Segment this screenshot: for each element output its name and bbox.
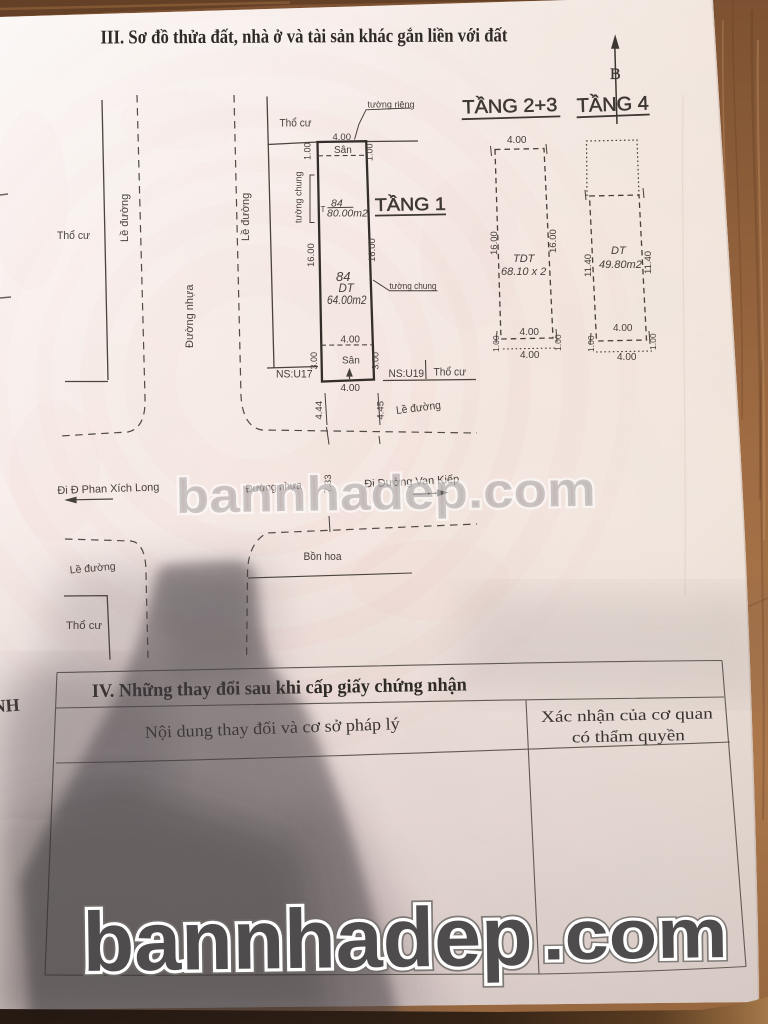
svg-text:TDT: TDT [513, 253, 536, 265]
svg-text:4.00: 4.00 [520, 350, 540, 361]
svg-text:16.00: 16.00 [306, 243, 317, 267]
svg-text:Lề đường: Lề đường [240, 193, 252, 241]
svg-text:4.45: 4.45 [376, 401, 387, 420]
svg-text:bannhadep: bannhadep [82, 889, 533, 989]
svg-text:T: T [321, 205, 326, 214]
svg-text:68.10 x 2: 68.10 x 2 [501, 266, 546, 278]
svg-text:4.00: 4.00 [341, 383, 361, 394]
svg-text:4.44: 4.44 [314, 401, 325, 420]
svg-text:16.00: 16.00 [489, 231, 500, 255]
svg-text:Lề đường: Lề đường [119, 194, 131, 242]
svg-text:1.00: 1.00 [648, 333, 658, 350]
svg-text:.com: .com [542, 894, 728, 975]
svg-text:49.80m2: 49.80m2 [599, 259, 642, 271]
svg-text:84: 84 [336, 269, 350, 284]
svg-text:III. Sơ đồ thửa đất, nhà ở và: III. Sơ đồ thửa đất, nhà ở và tài sản kh… [100, 25, 508, 48]
svg-text:DT: DT [611, 245, 627, 257]
svg-text:3.00: 3.00 [309, 352, 319, 370]
svg-text:NS:U19: NS:U19 [389, 368, 425, 380]
svg-text:Thổ cư: Thổ cư [434, 367, 467, 379]
svg-text:1.00: 1.00 [365, 143, 375, 161]
svg-text:bannhadep.com: bannhadep.com [175, 463, 596, 524]
svg-text:TẦNG 4: TẦNG 4 [576, 91, 649, 117]
svg-text:TẦNG 2+3: TẦNG 2+3 [462, 94, 558, 118]
svg-text:Bồn hoa: Bồn hoa [304, 551, 343, 563]
svg-text:4.00: 4.00 [613, 323, 633, 334]
svg-text:4.00: 4.00 [520, 327, 540, 338]
svg-text:Sân: Sân [334, 145, 352, 156]
svg-text:Sân: Sân [342, 356, 360, 367]
svg-text:DT: DT [339, 283, 355, 295]
svg-text:16.00: 16.00 [548, 229, 559, 253]
svg-text:64.00m2: 64.00m2 [327, 295, 367, 307]
svg-text:4.00: 4.00 [341, 335, 361, 346]
svg-text:B: B [610, 66, 621, 83]
svg-text:Thổ cư: Thổ cư [57, 230, 91, 242]
svg-text:Đường nhựa: Đường nhựa [184, 284, 196, 348]
svg-text:11.40: 11.40 [643, 251, 654, 274]
svg-text:4.00: 4.00 [333, 132, 352, 143]
svg-text:Thổ cư: Thổ cư [280, 118, 313, 130]
svg-text:tường chung: tường chung [294, 172, 304, 223]
svg-text:Xác nhận của cơ quan: Xác nhận của cơ quan [541, 705, 713, 726]
svg-text:16.00: 16.00 [367, 238, 378, 262]
svg-text:1.00: 1.00 [586, 335, 596, 352]
svg-text:3.00: 3.00 [371, 352, 381, 370]
svg-text:11.40: 11.40 [583, 254, 594, 277]
svg-text:có thẩm quyền: có thẩm quyền [572, 727, 685, 746]
svg-text:1.00: 1.00 [491, 335, 501, 352]
svg-text:80.00m2: 80.00m2 [327, 208, 368, 220]
svg-text:1.00: 1.00 [303, 142, 313, 160]
svg-text:4.00: 4.00 [617, 352, 637, 363]
svg-text:NS:U17: NS:U17 [276, 369, 313, 381]
svg-text:TẦNG 1: TẦNG 1 [375, 193, 446, 215]
svg-text:4.00: 4.00 [507, 135, 527, 146]
